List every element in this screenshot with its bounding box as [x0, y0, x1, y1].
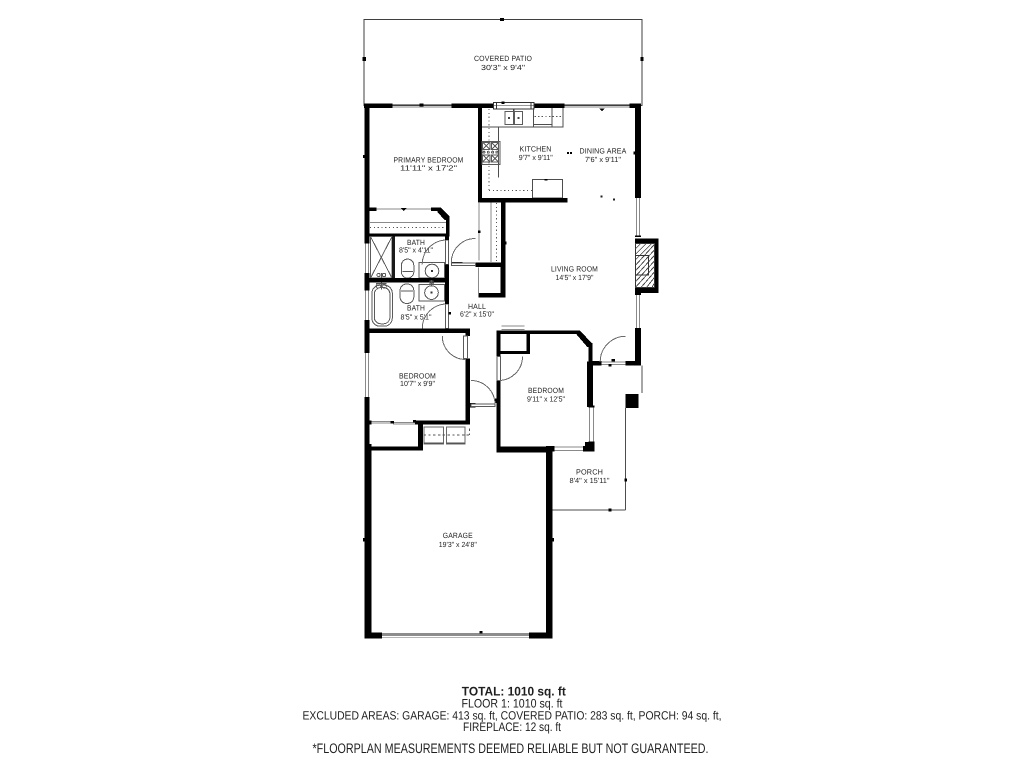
svg-text:9'7" x 9'11": 9'7" x 9'11"	[519, 153, 553, 162]
svg-text:10'7" x 9'9": 10'7" x 9'9"	[400, 379, 435, 388]
svg-text:6'2" x 15'0": 6'2" x 15'0"	[460, 310, 494, 319]
svg-text:GARAGE: GARAGE	[443, 531, 473, 540]
svg-text:*FLOORPLAN MEASUREMENTS DEEMED: *FLOORPLAN MEASUREMENTS DEEMED RELIABLE …	[313, 741, 709, 756]
svg-text:19'3" x 24'8": 19'3" x 24'8"	[439, 540, 477, 549]
svg-text:COVERED PATIO: COVERED PATIO	[474, 54, 532, 63]
svg-text:9'11" x 12'5": 9'11" x 12'5"	[527, 394, 565, 403]
svg-text:8'4" x 15'11": 8'4" x 15'11"	[570, 476, 610, 485]
svg-text:7'6" x 9'11": 7'6" x 9'11"	[585, 155, 621, 164]
svg-text:30'3" x 9'4": 30'3" x 9'4"	[481, 63, 525, 72]
svg-text:14'5" x 17'9": 14'5" x 17'9"	[556, 273, 594, 282]
svg-text:11'11" x 17'2": 11'11" x 17'2"	[400, 164, 457, 173]
svg-text:BATH: BATH	[407, 304, 425, 313]
svg-text:8'5" x 4'11": 8'5" x 4'11"	[399, 246, 433, 255]
svg-text:FIREPLACE: 12 sq. ft: FIREPLACE: 12 sq. ft	[463, 720, 561, 734]
